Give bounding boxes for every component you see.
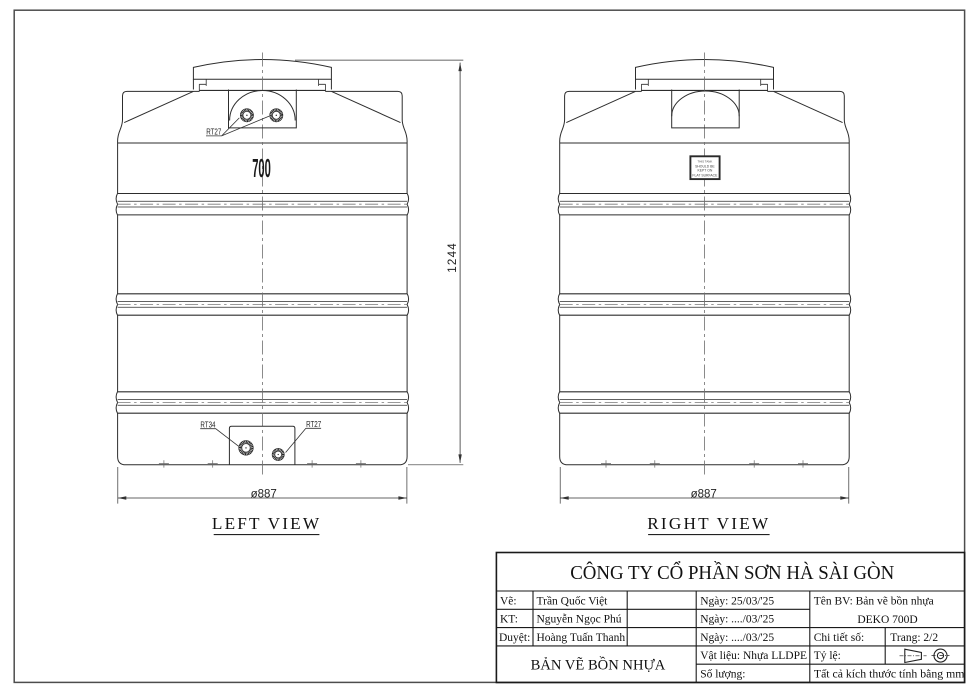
svg-text:KEPT ON: KEPT ON bbox=[697, 169, 712, 173]
svg-text:ø887: ø887 bbox=[251, 488, 277, 500]
svg-text:RT27: RT27 bbox=[306, 420, 321, 429]
svg-text:RT34: RT34 bbox=[200, 421, 215, 430]
svg-text:Hoàng Tuấn Thanh: Hoàng Tuấn Thanh bbox=[537, 631, 626, 644]
svg-text:700: 700 bbox=[252, 155, 271, 184]
svg-text:LEFT VIEW: LEFT VIEW bbox=[212, 514, 321, 533]
svg-text:DEKO 700D: DEKO 700D bbox=[857, 614, 917, 626]
svg-text:Chi tiết số:: Chi tiết số: bbox=[814, 631, 864, 644]
svg-text:Tên BV: Bản vẽ bồn nhựa: Tên BV: Bản vẽ bồn nhựa bbox=[814, 595, 934, 608]
svg-text:Vẽ:: Vẽ: bbox=[500, 595, 517, 607]
svg-text:CÔNG TY CỔ PHẦN SƠN HÀ SÀI GÒN: CÔNG TY CỔ PHẦN SƠN HÀ SÀI GÒN bbox=[570, 562, 894, 584]
svg-text:Số lượng:: Số lượng: bbox=[700, 668, 745, 681]
svg-text:Tỷ lệ:: Tỷ lệ: bbox=[814, 650, 841, 662]
svg-text:RT27: RT27 bbox=[206, 128, 221, 137]
svg-text:Trang: 2/2: Trang: 2/2 bbox=[890, 632, 938, 644]
svg-text:Ngày: ..../03/'25: Ngày: ..../03/'25 bbox=[700, 614, 774, 626]
svg-text:Trần Quốc Việt: Trần Quốc Việt bbox=[537, 594, 609, 607]
svg-text:SHOULD BE: SHOULD BE bbox=[695, 164, 715, 168]
svg-text:Ngày: 25/03/'25: Ngày: 25/03/'25 bbox=[700, 595, 774, 607]
svg-text:FLAT SURFACE: FLAT SURFACE bbox=[692, 173, 718, 177]
svg-text:Duyệt:: Duyệt: bbox=[499, 632, 530, 644]
svg-text:Vật liệu: Nhựa LLDPE: Vật liệu: Nhựa LLDPE bbox=[700, 650, 807, 662]
svg-text:RIGHT VIEW: RIGHT VIEW bbox=[647, 514, 770, 533]
svg-text:KT:: KT: bbox=[500, 614, 518, 626]
svg-text:BẢN VẼ BỒN NHỰA: BẢN VẼ BỒN NHỰA bbox=[531, 656, 666, 674]
svg-text:ø887: ø887 bbox=[691, 488, 717, 500]
svg-text:Ngày: ..../03/'25: Ngày: ..../03/'25 bbox=[700, 632, 774, 644]
svg-text:THIS TANK: THIS TANK bbox=[697, 159, 712, 163]
svg-text:Tất cả kích thước tính bằng mm: Tất cả kích thước tính bằng mm bbox=[814, 668, 965, 681]
svg-text:Nguyễn Ngọc Phú: Nguyễn Ngọc Phú bbox=[537, 613, 622, 626]
svg-text:1244: 1244 bbox=[447, 242, 459, 273]
